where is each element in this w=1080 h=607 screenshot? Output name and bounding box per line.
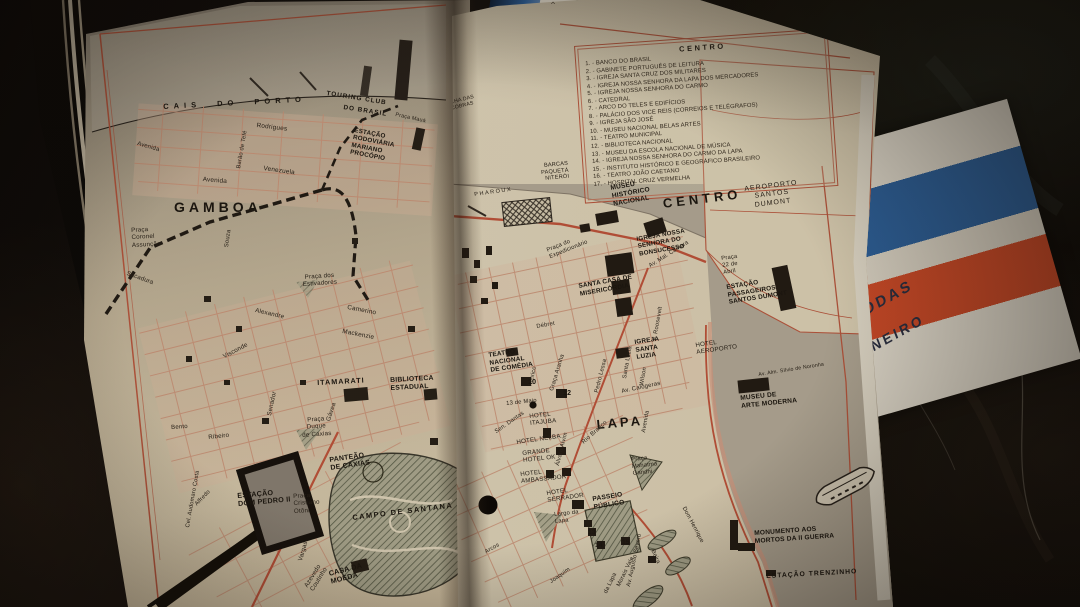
- photo-scene: ODAS ANEIRO: [0, 0, 1080, 607]
